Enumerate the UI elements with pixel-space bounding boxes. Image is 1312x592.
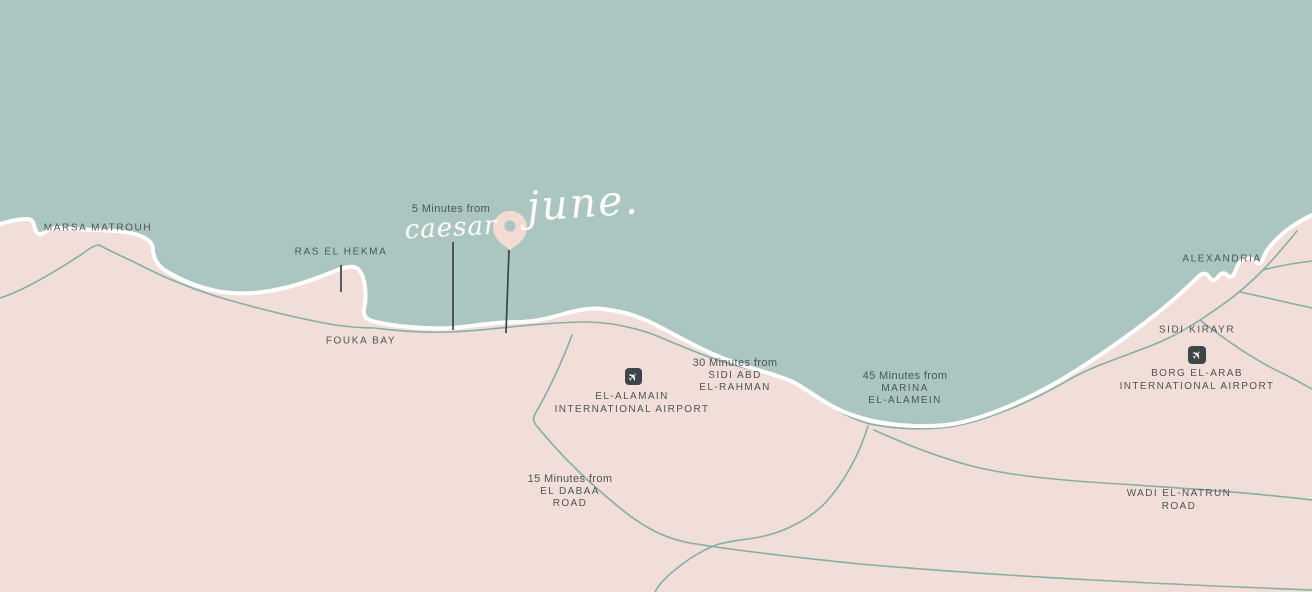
label-alexandria: ALEXANDRIA: [1182, 254, 1261, 265]
label-ras-el-hekma: RAS EL HEKMA: [295, 247, 388, 258]
el-dabaa-prefix: 15 Minutes from: [528, 473, 613, 486]
project-logo-june: june.: [525, 175, 641, 231]
el-alamain-airport-icon: ✈: [625, 368, 642, 385]
caesar-script-label: caesar: [404, 211, 498, 246]
label-sidi-kirayr: SIDI KIRAYR: [1159, 325, 1235, 336]
wadi-el-natrun-line1: WADI EL-NATRUN: [1127, 488, 1232, 501]
sidi-abd-line2: EL-RAHMAN: [693, 382, 778, 395]
borg-el-arab-name-line2: INTERNATIONAL AIRPORT: [1120, 381, 1275, 394]
label-el-alamain-airport: EL-ALAMAIN INTERNATIONAL AIRPORT: [555, 391, 710, 416]
pin-hole: [504, 220, 515, 231]
label-borg-el-arab-airport: BORG EL-ARAB INTERNATIONAL AIRPORT: [1120, 368, 1275, 393]
el-dabaa-line2: ROAD: [528, 498, 613, 511]
distance-note-marina-el-alamein: 45 Minutes from MARINA EL-ALAMEIN: [863, 370, 948, 408]
wadi-el-natrun-line2: ROAD: [1127, 501, 1232, 514]
borg-el-arab-name-line1: BORG EL-ARAB: [1120, 368, 1275, 381]
distance-note-sidi-abd-el-rahman: 30 Minutes from SIDI ABD EL-RAHMAN: [693, 357, 778, 395]
marina-prefix: 45 Minutes from: [863, 370, 948, 383]
marina-line2: EL-ALAMEIN: [863, 395, 948, 408]
el-alamain-name-line1: EL-ALAMAIN: [555, 391, 710, 404]
airplane-icon: ✈: [626, 369, 642, 385]
marina-line1: MARINA: [863, 383, 948, 396]
label-marsa-matrouh: MARSA MATROUH: [44, 223, 152, 234]
coastal-map: june. 5 Minutes from caesar MARSA MATROU…: [0, 0, 1312, 592]
map-artwork: [0, 0, 1312, 592]
label-fouka-bay: FOUKA BAY: [326, 336, 396, 347]
sidi-abd-line1: SIDI ABD: [693, 370, 778, 383]
sidi-abd-prefix: 30 Minutes from: [693, 357, 778, 370]
el-dabaa-line1: EL DABAA: [528, 486, 613, 499]
label-wadi-el-natrun-road: WADI EL-NATRUN ROAD: [1127, 488, 1232, 513]
distance-note-el-dabaa-road: 15 Minutes from EL DABAA ROAD: [528, 473, 613, 511]
el-alamain-name-line2: INTERNATIONAL AIRPORT: [555, 404, 710, 417]
airplane-icon: ✈: [1189, 347, 1205, 363]
borg-el-arab-airport-icon: ✈: [1188, 346, 1206, 364]
